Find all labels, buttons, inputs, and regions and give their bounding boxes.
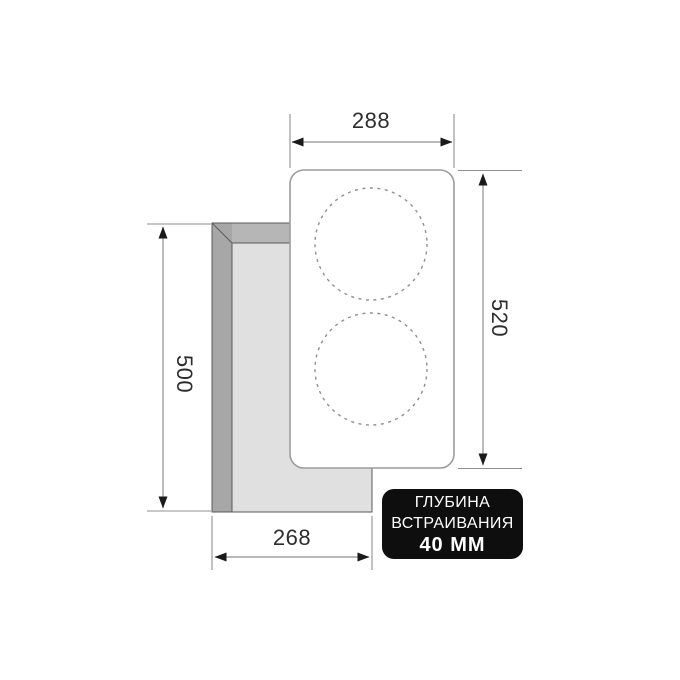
badge-text-line1: ГЛУБИНА xyxy=(415,492,490,513)
dimension-label-cooktop-height: 520 xyxy=(486,299,512,337)
cooktop xyxy=(290,170,454,468)
dimension-label-cooktop-width: 288 xyxy=(352,108,390,134)
badge-text-depth-value: 40 ММ xyxy=(419,534,485,556)
diagram-stage: 288 520 500 268 ГЛУБИНА ВСТРАИВАНИЯ 40 М… xyxy=(0,0,680,680)
dimension-label-cutout-width: 268 xyxy=(273,525,311,551)
badge-text-line2: ВСТРАИВАНИЯ xyxy=(391,513,514,534)
dimension-label-cutout-height: 500 xyxy=(171,355,197,393)
installation-depth-badge: ГЛУБИНА ВСТРАИВАНИЯ 40 ММ xyxy=(382,489,523,559)
cooktop-panel xyxy=(290,170,454,468)
diagram-canvas xyxy=(0,0,680,680)
cutout-bevel-left xyxy=(212,223,232,512)
